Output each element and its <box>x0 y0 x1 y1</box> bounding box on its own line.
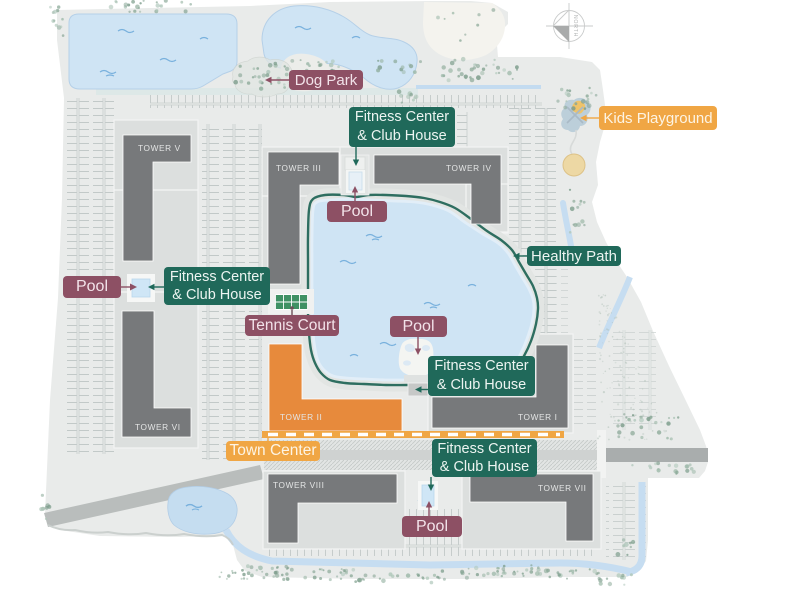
svg-text:TOWER I: TOWER I <box>518 412 558 422</box>
svg-text:TOWER VII: TOWER VII <box>538 483 587 493</box>
svg-text:TOWER V: TOWER V <box>138 143 181 153</box>
svg-text:NORTH: NORTH <box>572 15 578 37</box>
svg-text:TOWER IV: TOWER IV <box>446 163 492 173</box>
svg-text:TOWER VIII: TOWER VIII <box>273 480 324 490</box>
svg-text:TOWER II: TOWER II <box>280 412 322 422</box>
svg-text:TOWER III: TOWER III <box>276 163 321 173</box>
svg-text:TOWER VI: TOWER VI <box>135 422 181 432</box>
